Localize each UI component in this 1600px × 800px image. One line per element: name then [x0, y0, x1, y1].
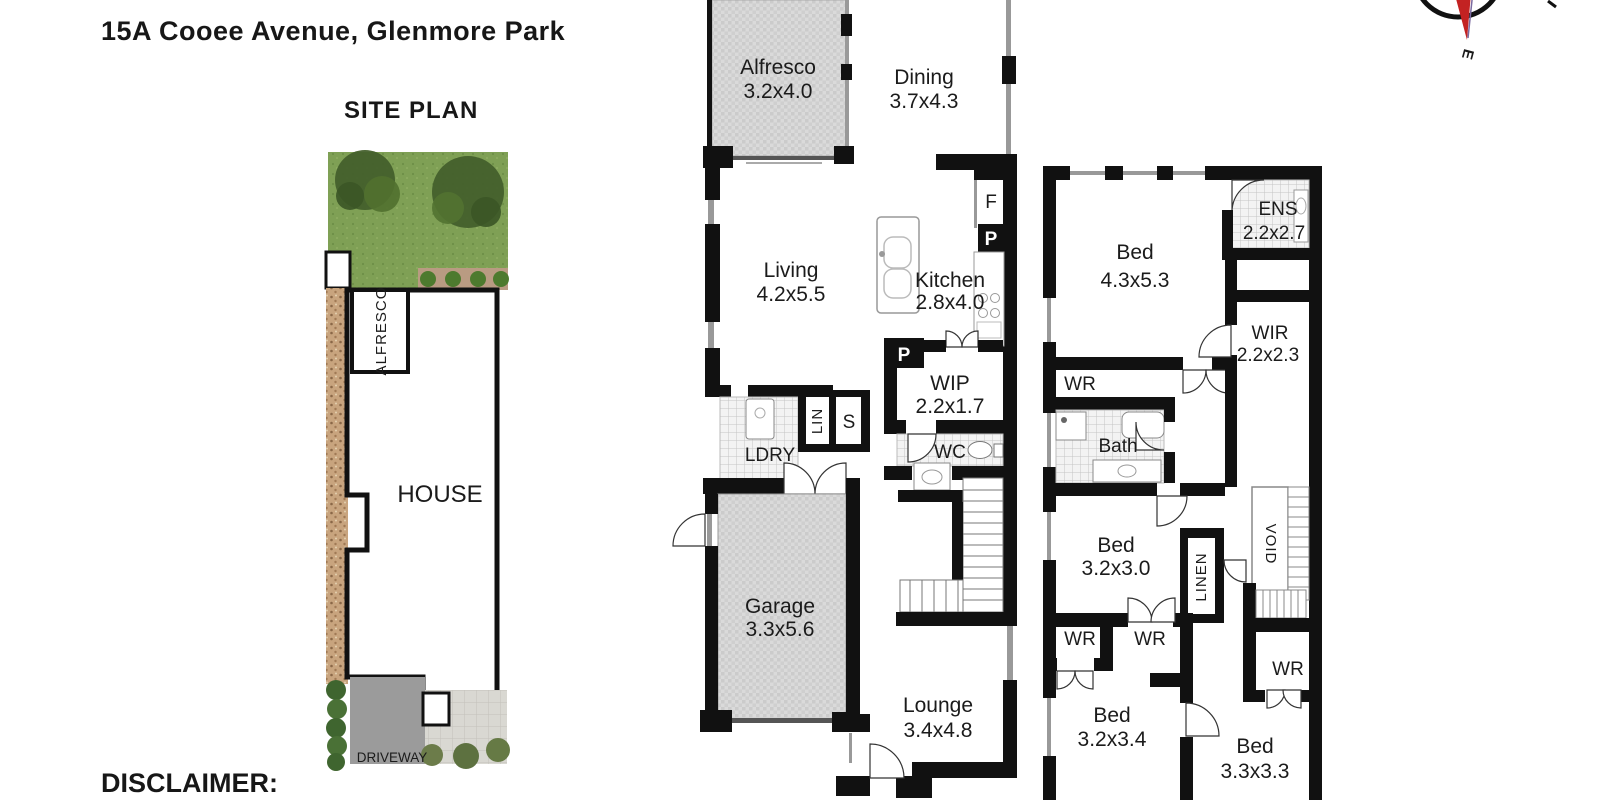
door-arc: [1283, 690, 1301, 708]
flower-bed: [418, 268, 509, 290]
room-bed1: Bed 4.3x5.3: [1043, 241, 1237, 393]
first-floor-plan: ENS 2.2x2.7 Bed 4.3x5.3 WIR 2.2x2.3 WR: [1015, 140, 1340, 800]
fridge-label: F: [985, 192, 997, 213]
shrub-row: [326, 680, 347, 771]
first-bed2-dims: 3.2x3.0: [1082, 557, 1151, 580]
pantry-label: P: [898, 345, 911, 366]
tree-icon: [432, 156, 504, 228]
first-bed2-label: Bed: [1097, 534, 1134, 557]
pantry-label: P: [985, 229, 998, 250]
site-driveway: DRIVEWAY: [326, 677, 510, 771]
ground-lounge-label: Lounge: [903, 694, 973, 717]
room-wip: P WIP 2.2x1.7: [884, 331, 1003, 430]
void-area: VOID: [1252, 487, 1309, 600]
shower-icon: [1056, 412, 1086, 440]
first-wr-master-label: WR: [1064, 374, 1096, 395]
room-alfresco: Alfresco 3.2x4.0: [703, 0, 854, 168]
ground-wip-dims: 2.2x1.7: [916, 395, 985, 418]
first-wr-left-label: WR: [1064, 629, 1096, 650]
first-bed1-dims: 4.3x5.3: [1101, 269, 1170, 292]
disclaimer-label: DISCLAIMER:: [101, 768, 278, 799]
door-arc: [1267, 690, 1285, 708]
site-house-label: HOUSE: [397, 481, 482, 508]
ground-alfresco-dims: 3.2x4.0: [744, 80, 813, 103]
compass-icon: E: [1395, 0, 1570, 125]
door-arc: [1186, 703, 1219, 736]
site-plan: ALFRESCO HOUSE DRIVEWAY: [320, 150, 512, 795]
stairs: [896, 478, 1006, 626]
compass-east-label: E: [1458, 47, 1477, 61]
ground-dining-label: Dining: [894, 66, 954, 89]
first-bed4-dims: 3.3x3.3: [1221, 760, 1290, 783]
door-arc: [1157, 496, 1187, 526]
first-wir-label: WIR: [1252, 323, 1289, 344]
first-bed1-label: Bed: [1116, 241, 1153, 264]
door-arc: [870, 744, 904, 778]
room-bath: WR Bath: [1043, 374, 1175, 483]
door-arc: [1151, 598, 1175, 622]
first-ens-label: ENS: [1258, 199, 1297, 220]
floorplan-page: 15A Cooee Avenue, Glenmore Park SITE PLA…: [0, 0, 1600, 800]
door-arc: [1183, 370, 1206, 393]
toilet-icon: [968, 442, 992, 459]
ground-kitchen-dims: 2.8x4.0: [916, 291, 985, 314]
ground-garage-label: Garage: [745, 595, 815, 618]
first-wr-right-label: WR: [1272, 659, 1304, 680]
driveway-step: [423, 693, 449, 725]
ground-dining-dims: 3.7x4.3: [890, 90, 959, 113]
room-living: Living 4.2x5.5: [757, 259, 826, 306]
room-garage: Garage 3.3x5.6: [673, 463, 860, 732]
sink-icon: [884, 237, 911, 268]
door-arc: [784, 463, 815, 494]
page-title: 15A Cooee Avenue, Glenmore Park: [101, 16, 565, 47]
shower-icon: [1061, 417, 1067, 423]
room-kitchen: F P Kitchen 2.8x4.0: [877, 170, 1006, 346]
linen-closet: LINEN: [1180, 528, 1246, 623]
door-arc: [946, 331, 962, 347]
first-bed3-dims: 3.2x3.4: [1078, 728, 1147, 751]
bathtub-icon: [1122, 412, 1164, 438]
ground-lounge-dims: 3.4x4.8: [904, 719, 973, 742]
basin-icon: [914, 463, 950, 490]
door-arc: [673, 514, 705, 546]
ground-floor-plan: Alfresco 3.2x4.0 Dining 3.7x4.3 Livin: [650, 0, 1025, 800]
ground-kitchen-label: Kitchen: [915, 269, 985, 292]
ground-garage-dims: 3.3x5.6: [746, 618, 815, 641]
site-alfresco-label: ALFRESCO: [373, 287, 390, 376]
door-arc: [1075, 671, 1093, 689]
ground-wc-label: WC: [934, 442, 966, 463]
first-bed4-label: Bed: [1236, 735, 1273, 758]
toilet-icon: [994, 444, 1003, 457]
ground-lin-label: LIN: [809, 408, 826, 434]
ground-alfresco-label: Alfresco: [740, 56, 816, 79]
door-arc: [1224, 560, 1246, 582]
compass-tick: [1548, 1, 1556, 7]
site-gate: [326, 252, 350, 288]
laundry-tub-icon: [746, 399, 774, 439]
site-plan-heading: SITE PLAN: [344, 97, 478, 125]
first-void-label: VOID: [1262, 524, 1279, 565]
first-linen-label: LINEN: [1193, 552, 1210, 601]
site-house: ALFRESCO HOUSE: [347, 287, 497, 727]
ground-living-dims: 4.2x5.5: [757, 283, 826, 306]
tap-icon: [879, 251, 885, 257]
door-arc: [962, 331, 978, 347]
first-bed3-label: Bed: [1093, 704, 1130, 727]
first-ens-dims: 2.2x2.7: [1243, 223, 1305, 244]
ground-store-label: S: [843, 412, 856, 433]
first-wir-dims: 2.2x2.3: [1237, 345, 1299, 366]
door-arc: [815, 463, 846, 494]
door-arc: [1128, 598, 1152, 622]
vanity-icon: [1093, 460, 1161, 482]
room-dining: Dining 3.7x4.3: [890, 0, 1016, 154]
room-bed4: WR Bed 3.3x3.3: [1221, 583, 1322, 783]
ground-living-label: Living: [764, 259, 819, 282]
ground-wip-label: WIP: [930, 372, 970, 395]
first-wr-mid-label: WR: [1134, 629, 1166, 650]
room-bed3: WR WR Bed 3.2x3.4: [1043, 598, 1219, 800]
sink-icon: [884, 269, 911, 298]
door-arc: [1057, 671, 1075, 689]
site-driveway-label: DRIVEWAY: [357, 750, 428, 765]
door-arc: [1199, 325, 1231, 357]
first-bath-label: Bath: [1098, 436, 1137, 457]
